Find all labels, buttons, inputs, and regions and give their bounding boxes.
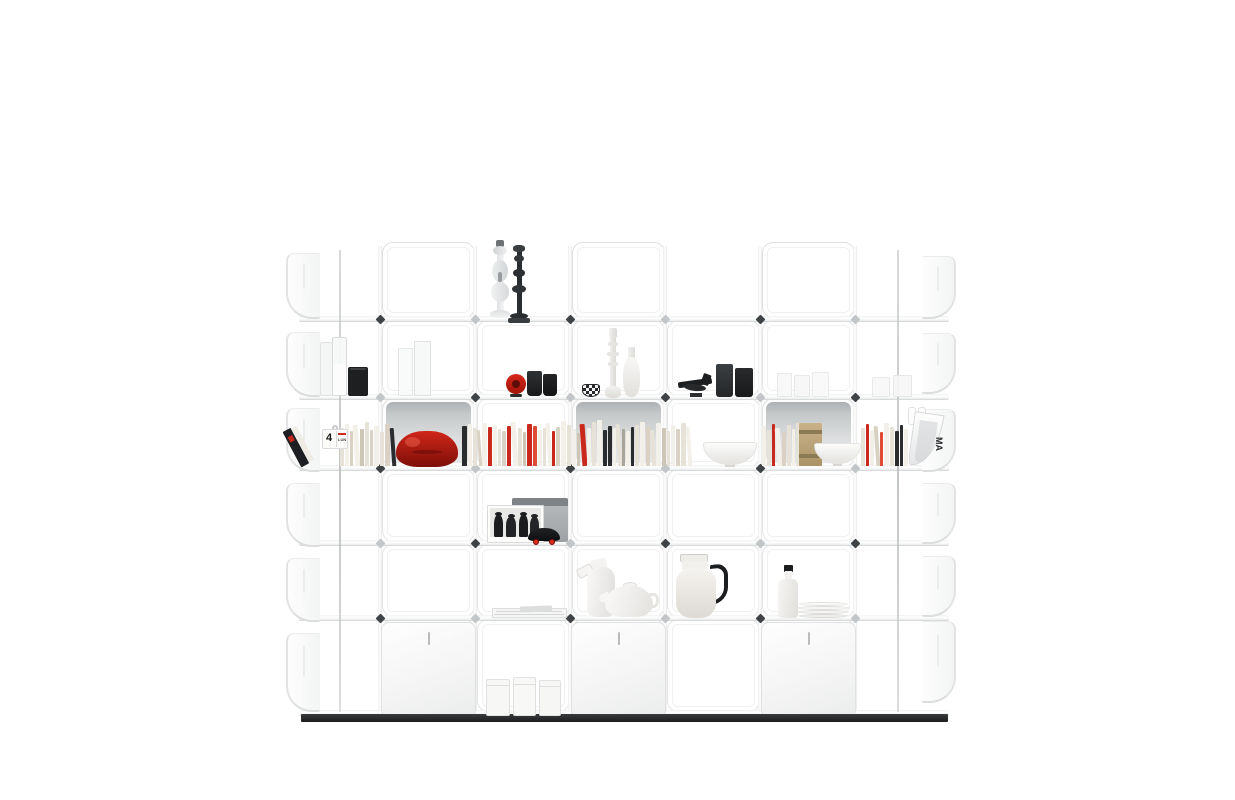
white-bowl-b — [814, 443, 861, 466]
ribbed-cup-a — [716, 364, 733, 397]
book-spine — [861, 428, 865, 466]
book-spine — [880, 432, 883, 466]
glass-candlestick-part — [498, 272, 502, 282]
black-cylinder-vase-part — [350, 368, 366, 370]
white-canisters-part — [513, 677, 536, 716]
frosted-cups-right — [872, 375, 912, 397]
toy-car-part — [533, 539, 539, 545]
book-spine — [567, 425, 571, 466]
black-cylinder-vase — [348, 367, 368, 396]
book-spine — [572, 429, 576, 466]
glass-candlestick-part — [493, 246, 507, 255]
paper-stack-part — [520, 605, 552, 612]
red-vase-part — [412, 450, 442, 454]
frosted-cups-left-part — [794, 375, 810, 397]
book-spine — [493, 425, 497, 466]
book-spine — [626, 431, 630, 466]
white-vase-part — [623, 357, 640, 397]
frosted-cups-right-part — [893, 375, 912, 397]
frosted-cups-left-part — [777, 373, 792, 397]
book-spine — [502, 431, 506, 466]
photo-frame-part — [494, 515, 503, 537]
book-spine — [667, 431, 670, 466]
red-wheel-toy-part — [512, 380, 520, 388]
black-tumbler-a-part — [527, 371, 542, 396]
calendar-weekday: LUN — [338, 438, 347, 444]
black-plane-sculpture — [676, 373, 714, 397]
book-spine — [676, 429, 680, 466]
black-candlestick-part — [513, 245, 525, 252]
book-spine — [767, 430, 771, 466]
photo-frame-part — [519, 515, 528, 537]
book-spine — [895, 431, 899, 466]
glass-candlestick-part — [491, 282, 509, 302]
white-candlestick — [603, 328, 623, 398]
ribbed-cup-a-part — [716, 364, 733, 397]
antique-book-part — [799, 430, 822, 434]
checkered-bowl — [582, 384, 600, 397]
book-spine — [635, 425, 639, 466]
book-spine — [552, 431, 555, 466]
photo-frame-part — [520, 512, 527, 516]
black-plane-sculpture-part — [690, 393, 702, 397]
glass-beakers-part — [414, 341, 431, 396]
black-tumbler-a — [527, 371, 542, 396]
book-spine — [498, 429, 501, 466]
photo-frame-part — [508, 514, 515, 518]
white-bottle — [778, 565, 798, 618]
white-bottle-part — [778, 579, 798, 618]
white-bowl-a — [703, 442, 757, 467]
teapot-part — [605, 586, 653, 617]
red-vase-part — [396, 431, 458, 467]
product-photo-canvas: 4LUNMA — [0, 0, 1235, 800]
glass-cylinder-vases — [320, 337, 348, 396]
magazine-title: MA — [923, 437, 943, 449]
book-spine — [365, 422, 369, 466]
white-canisters-part — [486, 685, 510, 686]
book-spine — [890, 427, 894, 466]
black-tumbler-b-part — [543, 374, 557, 396]
plate-stack-part — [799, 602, 848, 606]
photo-frame-part — [531, 514, 538, 518]
book-spine — [556, 427, 560, 466]
glass-candlestick-part — [490, 310, 510, 318]
black-plane-sculpture-part — [700, 373, 711, 386]
book-spine — [762, 426, 766, 466]
paper-stack-part — [494, 614, 564, 615]
book-spine — [538, 430, 542, 466]
desk-calendar-part — [338, 433, 346, 435]
book-spine — [462, 426, 467, 466]
book-spine — [792, 429, 795, 466]
book-spine — [656, 423, 661, 466]
book-spine — [523, 432, 526, 466]
book-spine — [640, 422, 645, 466]
desk-calendar: 4LUN — [322, 429, 348, 449]
white-candlestick-part — [605, 386, 621, 398]
tilted-book — [283, 425, 316, 468]
red-wheel-toy — [506, 374, 526, 397]
photo-frame-part — [506, 517, 516, 537]
book-row-center — [462, 420, 692, 466]
plate-stack — [797, 602, 850, 618]
frosted-cups-left — [777, 372, 830, 397]
white-candlestick-part — [608, 362, 618, 366]
white-canisters — [486, 677, 564, 716]
book-spine — [884, 423, 889, 466]
striped-jug-part — [676, 568, 716, 618]
book-spine — [482, 423, 487, 466]
black-candlestick-part — [514, 255, 524, 262]
ribbed-cup-b — [735, 368, 753, 397]
toy-car-part — [549, 539, 555, 545]
black-cylinder-vase-part — [348, 367, 368, 396]
decor-objects-layer: 4LUNMA — [0, 0, 1235, 800]
book-spine — [468, 424, 472, 466]
red-vase — [396, 428, 458, 467]
book-row-right-b — [861, 423, 909, 466]
black-candlestick-part — [512, 285, 526, 293]
book-spine — [603, 430, 607, 466]
glass-cylinder-vases-part — [333, 364, 346, 395]
book-spine — [622, 429, 625, 466]
book-spine — [592, 422, 596, 466]
white-vase — [622, 347, 641, 397]
book-spine — [488, 427, 492, 466]
book-spine — [518, 428, 522, 466]
paper-stack — [492, 606, 567, 618]
ribbed-cup-b-part — [735, 368, 753, 397]
book-spine — [787, 425, 791, 466]
red-vase-part — [405, 437, 420, 447]
photo-frame-part — [495, 512, 502, 516]
book-spine — [662, 428, 666, 466]
glass-beakers — [398, 341, 432, 396]
black-candlestick — [508, 243, 530, 323]
toy-car — [528, 528, 560, 545]
book-spine — [782, 432, 786, 466]
book-spine — [631, 427, 634, 466]
black-tumbler-b — [543, 374, 557, 396]
book-spine — [380, 432, 384, 466]
plate-stack-part — [798, 610, 849, 614]
white-canisters-part — [513, 684, 536, 685]
book-spine — [561, 421, 566, 466]
teapot — [599, 582, 660, 617]
white-candlestick-part — [607, 352, 619, 356]
checkered-bowl-part — [582, 384, 600, 397]
curled-magazine: MA — [905, 407, 950, 467]
book-row-left — [340, 422, 396, 466]
book-spine — [370, 430, 373, 466]
book-spine — [597, 420, 602, 466]
book-spine — [900, 425, 903, 466]
book-spine — [608, 426, 612, 466]
desk-calendar-part — [336, 431, 337, 447]
book-spine — [866, 424, 869, 466]
book-spine — [533, 426, 537, 466]
book-spine — [527, 424, 532, 466]
white-candlestick-part — [608, 342, 618, 346]
plate-stack-part — [797, 606, 850, 610]
red-wheel-toy-part — [510, 394, 522, 397]
book-spine — [360, 429, 364, 466]
book-spine — [671, 425, 675, 466]
white-bowl-a-part — [703, 442, 757, 465]
book-spine — [587, 428, 591, 466]
black-candlestick-part — [508, 318, 530, 323]
calendar-day: 4 — [326, 433, 336, 445]
white-bowl-b-part — [814, 443, 861, 464]
glass-beakers-part — [398, 348, 413, 396]
book-spine — [686, 427, 693, 466]
frosted-cups-left-part — [812, 372, 829, 397]
white-candlestick-part — [609, 328, 617, 338]
black-candlestick-part — [513, 269, 525, 277]
white-canisters-part — [539, 686, 561, 687]
plate-stack-part — [799, 614, 848, 618]
frosted-cups-right-part — [872, 377, 890, 397]
book-spine — [374, 426, 379, 466]
striped-jug — [674, 554, 732, 618]
